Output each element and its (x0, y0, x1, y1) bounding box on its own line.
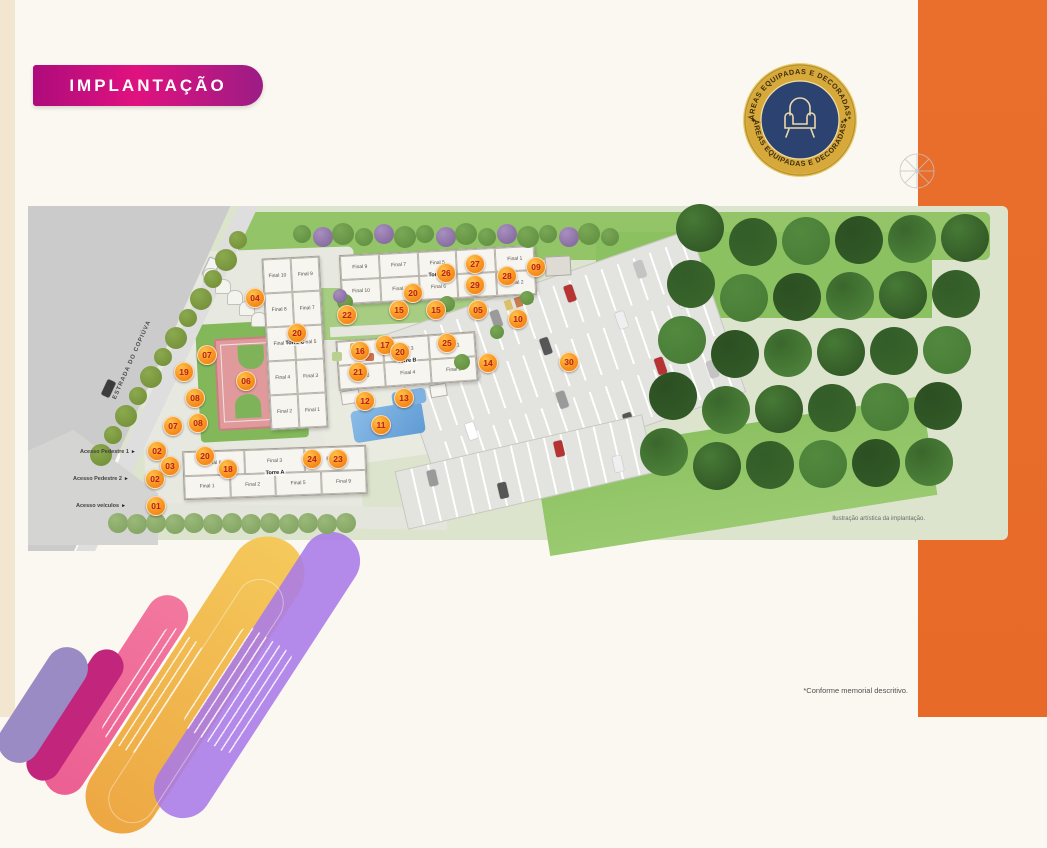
plan-marker-05: 05 (468, 300, 488, 320)
plan-marker-10: 10 (508, 309, 528, 329)
tree (317, 514, 337, 534)
tree (539, 225, 557, 243)
access-label: Acesso Pedestre 1► (80, 449, 136, 455)
tree (222, 513, 242, 533)
decorated-areas-badge: ÁREAS EQUIPADAS E DECORADAS* ÁREAS EQUIP… (740, 60, 860, 180)
forest-canopy (799, 440, 847, 488)
tree (490, 325, 504, 339)
tree (146, 513, 166, 533)
badge-inner-circle (761, 81, 839, 159)
plan-marker-07: 07 (197, 345, 217, 365)
tree (279, 514, 299, 534)
compass-icon (897, 151, 937, 191)
forest-canopy (667, 260, 715, 308)
forest-canopy (729, 218, 777, 266)
plan-marker-11: 11 (371, 415, 391, 435)
badge-star-left: ✦ (750, 116, 757, 125)
tree (332, 223, 354, 245)
plan-marker-14: 14 (478, 353, 498, 373)
forest-canopy (870, 327, 918, 375)
plan-marker-03: 03 (160, 456, 180, 476)
forest-canopy (773, 273, 821, 321)
plan-marker-18: 18 (218, 459, 238, 479)
forest-canopy (755, 385, 803, 433)
tree (478, 228, 496, 246)
plan-marker-15: 15 (389, 300, 409, 320)
tree (293, 225, 311, 243)
tree (203, 514, 223, 534)
tree (127, 514, 147, 534)
tree (497, 224, 517, 244)
forest-canopy (861, 383, 909, 431)
forest-canopy (905, 438, 953, 486)
parked-car (426, 469, 438, 487)
tree (436, 227, 456, 247)
plan-marker-19: 19 (174, 362, 194, 382)
forest-canopy (711, 330, 759, 378)
plan-marker-16: 16 (350, 341, 370, 361)
plan-marker-07: 07 (163, 416, 183, 436)
tower-name: Torre A (264, 469, 285, 476)
forest-canopy (914, 382, 962, 430)
pool-house-2 (429, 383, 448, 398)
forest-canopy (888, 215, 936, 263)
plan-marker-06: 06 (236, 371, 256, 391)
plan-marker-27: 27 (465, 254, 485, 274)
plan-marker-04: 04 (245, 288, 265, 308)
parked-car (553, 440, 565, 458)
tree (165, 514, 185, 534)
plan-marker-15: 15 (426, 300, 446, 320)
tree (313, 227, 333, 247)
tree (416, 225, 434, 243)
forest-canopy (702, 386, 750, 434)
service-building (544, 255, 571, 276)
tree (140, 366, 162, 388)
disclaimer-note: *Conforme memorial descritivo. (700, 686, 908, 695)
unit-label: Final 4 (268, 360, 298, 395)
plan-marker-12: 12 (355, 391, 375, 411)
plan-marker-20: 20 (287, 323, 307, 343)
tree (520, 291, 534, 305)
tree (154, 348, 172, 366)
unit-label: Final 10 (263, 258, 293, 293)
access-label-text: Acesso Pedestre 1 (80, 449, 129, 455)
arrow-right-icon: ► (121, 503, 126, 509)
plan-marker-28: 28 (497, 266, 517, 286)
tree (455, 223, 477, 245)
plan-marker-13: 13 (394, 388, 414, 408)
plan-marker-24: 24 (302, 449, 322, 469)
forest-canopy (879, 271, 927, 319)
tree (578, 223, 600, 245)
tree (229, 231, 247, 249)
plan-marker-09: 09 (526, 257, 546, 277)
forest-canopy (720, 274, 768, 322)
parked-car (612, 455, 624, 473)
plan-marker-08: 08 (185, 388, 205, 408)
unit-label: Final 2 (270, 394, 300, 429)
access-label: Acesso veículos► (76, 503, 126, 509)
building-torre-c: Final 10Final 9Final 8Final 7Final 6Fina… (262, 256, 329, 431)
tree (129, 387, 147, 405)
plan-marker-29: 29 (465, 275, 485, 295)
forest-canopy (852, 439, 900, 487)
arrow-right-icon: ► (131, 449, 136, 455)
tree (394, 226, 416, 248)
plan-marker-23: 23 (328, 449, 348, 469)
parked-car (497, 482, 509, 500)
tree (204, 270, 222, 288)
forest-canopy (826, 272, 874, 320)
plan-marker-26: 26 (436, 263, 456, 283)
arrow-right-icon: ► (124, 476, 129, 482)
unit-label: Final 8 (264, 292, 294, 327)
tree (355, 228, 373, 246)
forest-canopy (932, 270, 980, 318)
access-label-text: Acesso veículos (76, 503, 119, 509)
tree (165, 327, 187, 349)
tree (336, 513, 356, 533)
plan-marker-08: 08 (188, 413, 208, 433)
access-label: Acesso Pedestre 2► (73, 476, 129, 482)
unit-label: Final 9 (291, 257, 321, 292)
forest-canopy (835, 216, 883, 264)
badge-star-right: ✦ (842, 116, 849, 125)
unit-label: Final 9 (340, 254, 380, 280)
forest-canopy (941, 214, 989, 262)
tree (104, 426, 122, 444)
tree (108, 513, 128, 533)
plan-marker-20: 20 (390, 342, 410, 362)
access-label-text: Acesso Pedestre 2 (73, 476, 122, 482)
tree (298, 513, 318, 533)
forest-canopy (808, 384, 856, 432)
forest-canopy (658, 316, 706, 364)
unit-label: Final 7 (292, 291, 322, 326)
plan-marker-25: 25 (437, 333, 457, 353)
plan-caption: Ilustração artística da implantação. (803, 516, 925, 522)
page-background: { "page": { "banner": "IMPLANTAÇÃO", "ca… (0, 0, 1047, 717)
tree (260, 513, 280, 533)
unit-label: Final 7 (379, 252, 419, 278)
forest-canopy (693, 442, 741, 490)
tree (115, 405, 137, 427)
tree (184, 513, 204, 533)
court-center-bot (234, 393, 261, 418)
forest-canopy (676, 204, 724, 252)
forest-canopy (923, 326, 971, 374)
plan-marker-21: 21 (348, 362, 368, 382)
tree (601, 228, 619, 246)
tree (517, 226, 539, 248)
tree (190, 288, 212, 310)
forest-canopy (649, 372, 697, 420)
tree (559, 227, 579, 247)
unit-label: Final 2 (230, 473, 276, 498)
forest-canopy (782, 217, 830, 265)
tree (374, 224, 394, 244)
plan-marker-20: 20 (195, 446, 215, 466)
tree (215, 249, 237, 271)
plan-marker-30: 30 (559, 352, 579, 372)
plan-marker-01: 01 (146, 496, 166, 516)
forest-canopy (640, 428, 688, 476)
unit-label: Final 1 (298, 392, 328, 427)
unit-label: Final 9 (320, 469, 366, 494)
forest-canopy (764, 329, 812, 377)
amenity-3 (332, 352, 342, 361)
plan-marker-20: 20 (403, 283, 423, 303)
tree (241, 514, 261, 534)
forest-canopy (817, 328, 865, 376)
unit-label: Final 3 (296, 359, 326, 394)
tree (179, 309, 197, 327)
tree (454, 354, 470, 370)
plan-marker-22: 22 (337, 305, 357, 325)
tree (333, 289, 347, 303)
forest-canopy (746, 441, 794, 489)
